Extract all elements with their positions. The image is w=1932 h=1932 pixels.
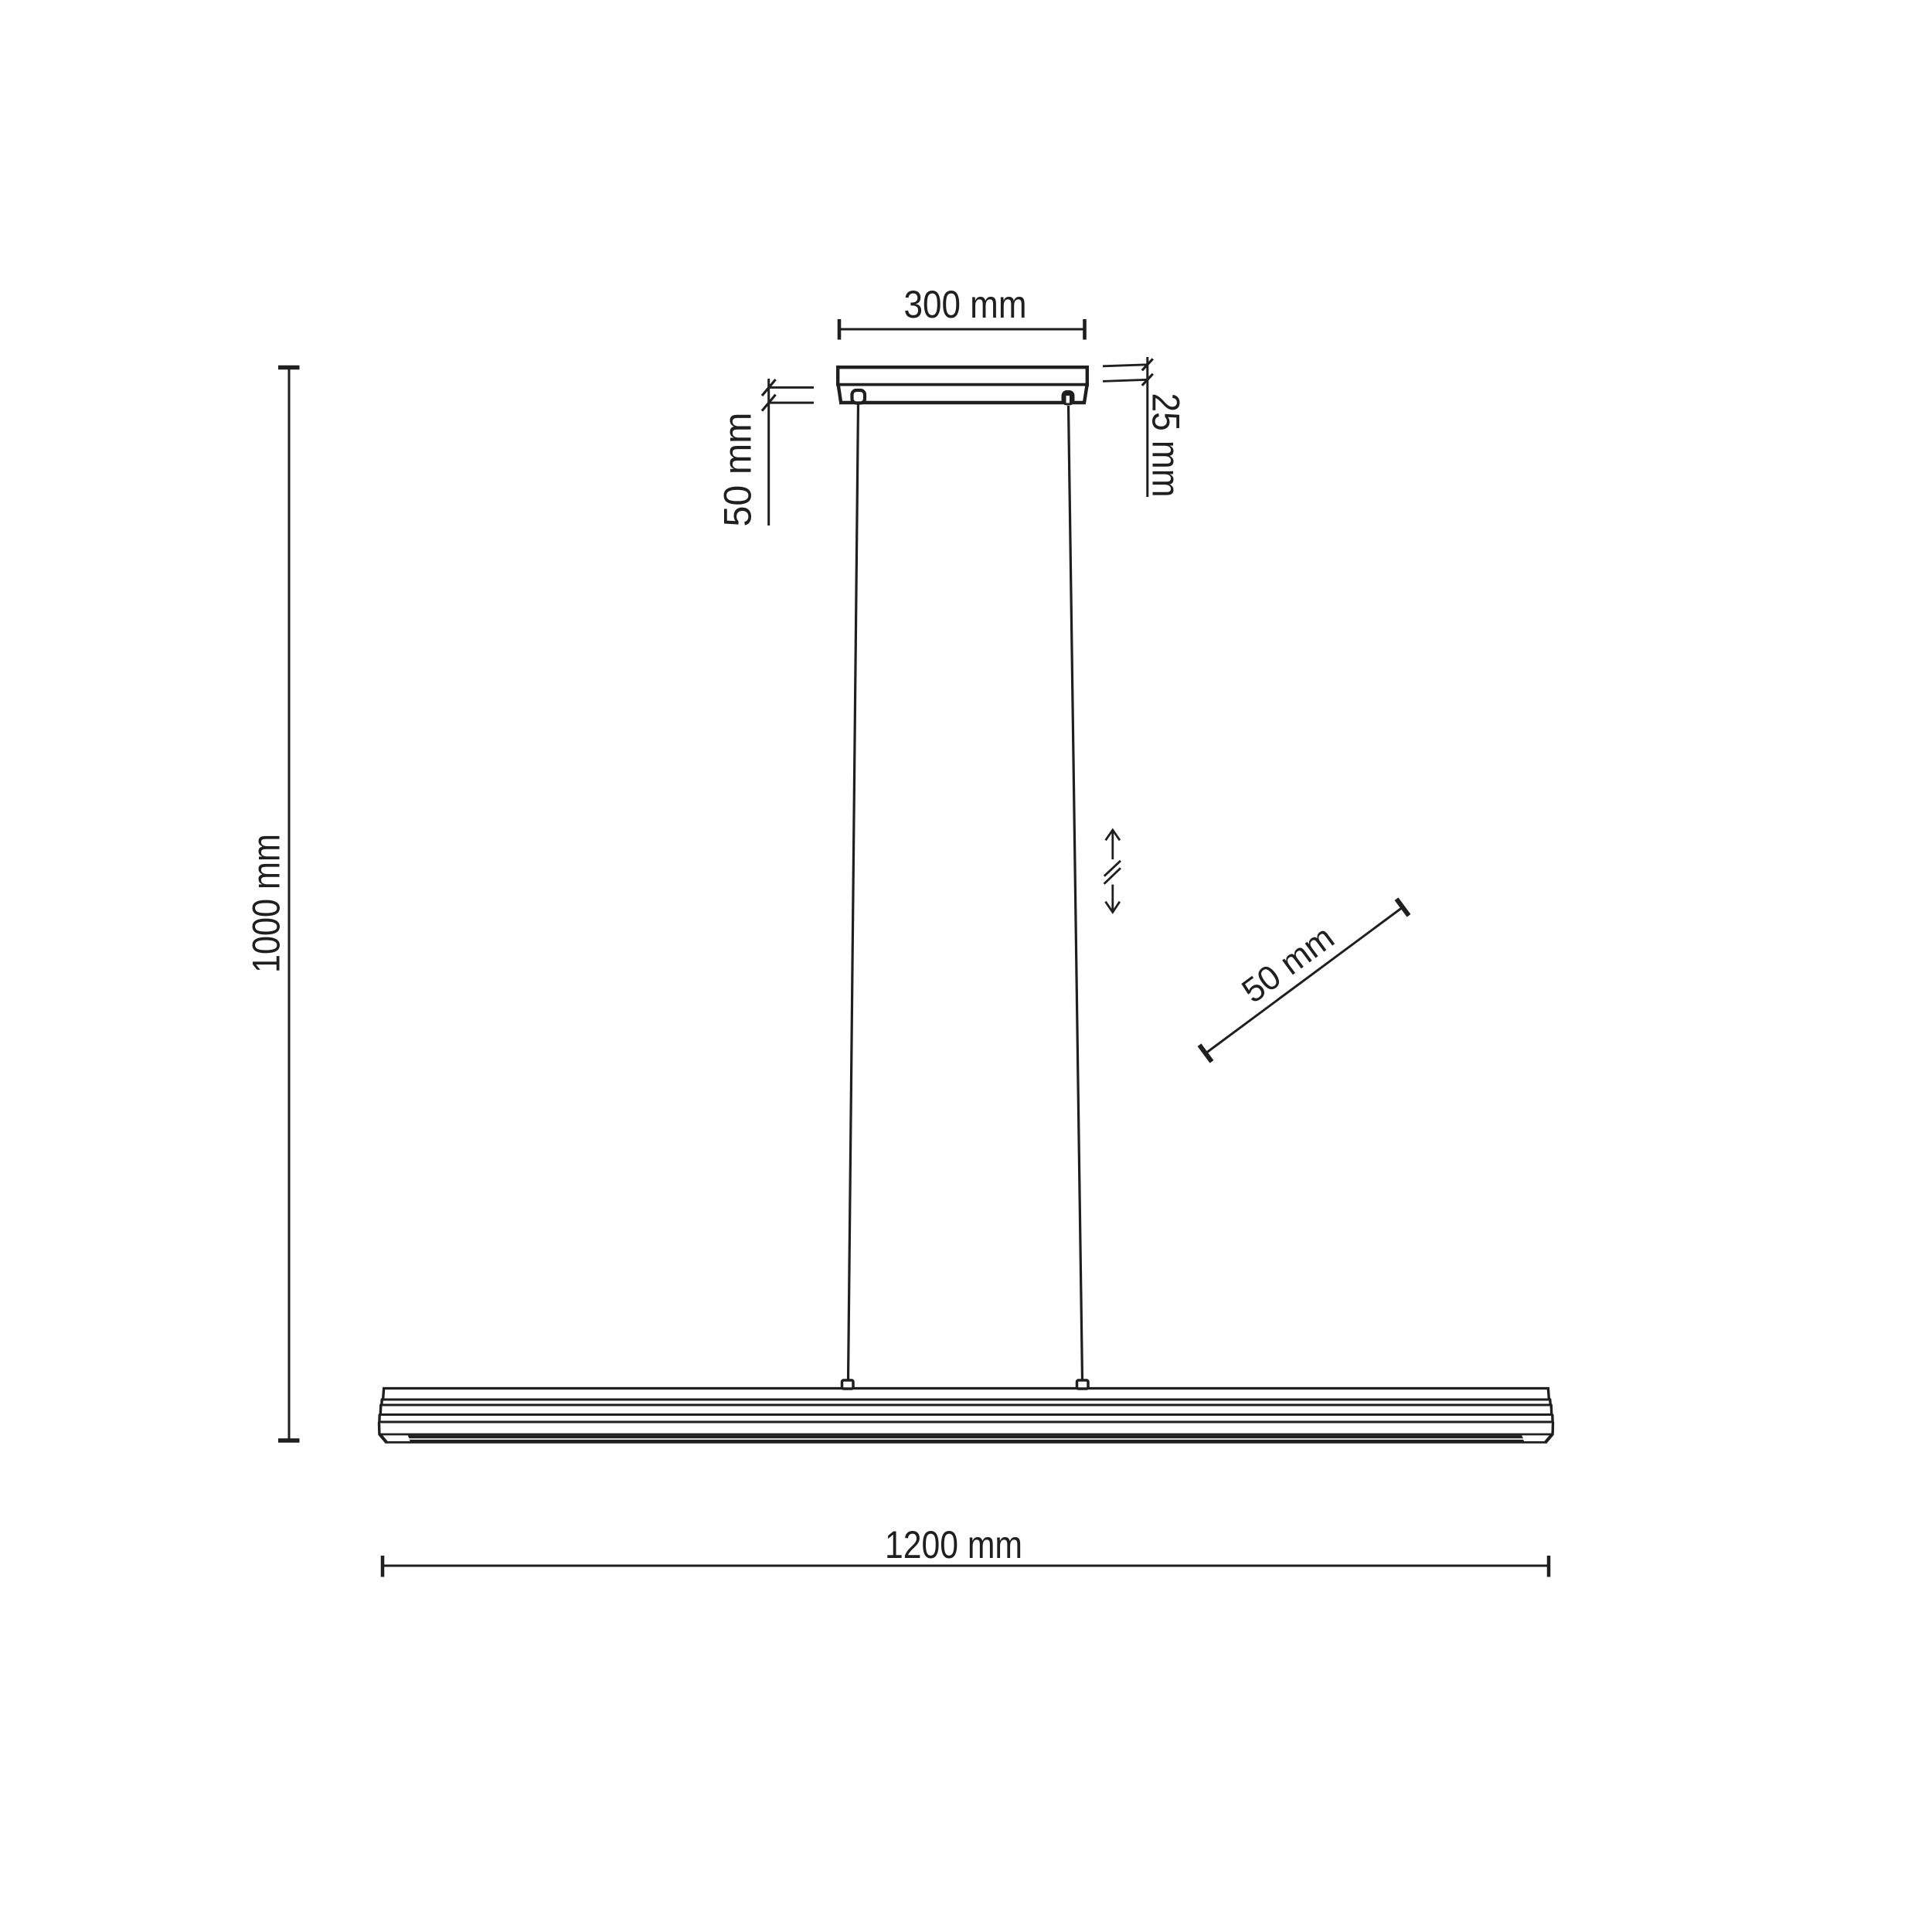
svg-text:1200 mm: 1200 mm	[885, 1523, 1022, 1566]
svg-text:1000 mm: 1000 mm	[245, 834, 288, 973]
svg-text:300 mm: 300 mm	[904, 283, 1027, 326]
svg-text:50 mm: 50 mm	[716, 413, 760, 527]
svg-text:25 mm: 25 mm	[1145, 393, 1188, 498]
